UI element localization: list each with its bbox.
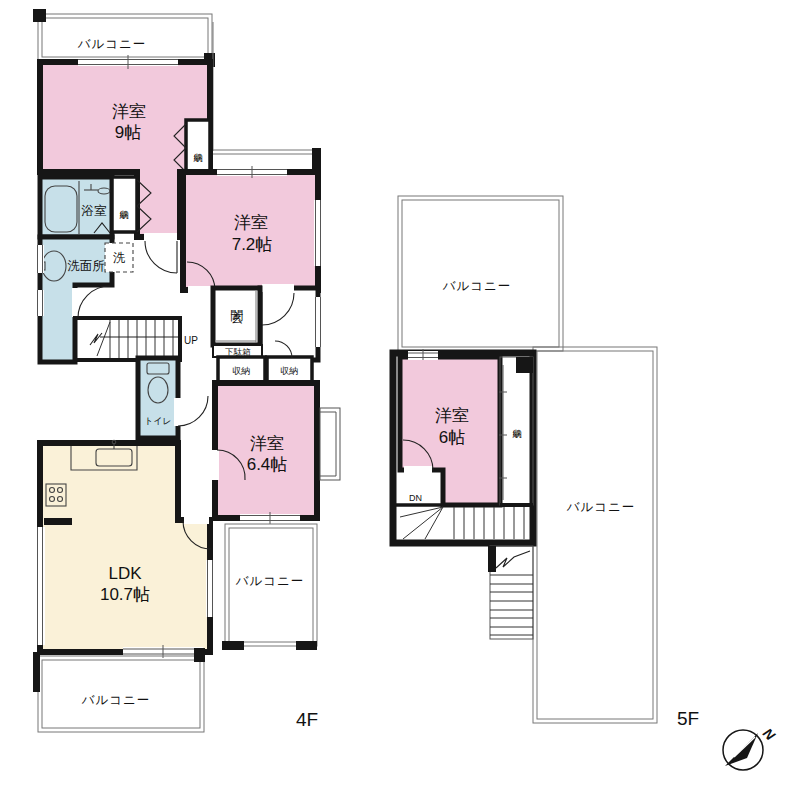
toilet-room: トイレ xyxy=(138,358,208,438)
balcony-bottom-4f: バルコニー xyxy=(33,648,205,732)
washer-space: 洗 xyxy=(105,243,133,272)
genkan: 玄関 xyxy=(213,288,260,345)
bathroom-label: 浴室 xyxy=(81,204,108,218)
room-64jo-size: 6.4帖 xyxy=(247,455,288,474)
entry-hall xyxy=(260,284,322,360)
floor-5f: バルコニー バルコニー 洋室 6帖 xyxy=(393,196,699,729)
closet-label: 収納 xyxy=(232,366,250,376)
stairs-exterior-5f xyxy=(488,546,533,639)
ldk: LDK 10.7帖 xyxy=(36,440,214,658)
room-64jo: 洋室 6.4帖 xyxy=(211,383,340,524)
floor-5f-label: 5F xyxy=(677,708,699,729)
balcony-top-5f: バルコニー xyxy=(398,196,563,351)
floor-4f-label: 4F xyxy=(296,709,318,730)
floor-4f: バルコニー 洋室 9帖 収納 xyxy=(33,9,340,732)
compass-north-label: N xyxy=(760,725,779,744)
stairs-down-label: DN xyxy=(409,493,422,503)
bathroom: 浴室 xyxy=(40,177,112,237)
room-6jo-size: 6帖 xyxy=(439,428,465,447)
stair-direction-arrow xyxy=(496,551,530,568)
bay-window xyxy=(320,408,340,480)
stairs-up-label: UP xyxy=(184,335,198,346)
ldk-size: 10.7帖 xyxy=(100,585,150,604)
washer-label: 洗 xyxy=(113,251,126,265)
room-72jo: 洋室 7.2帖 xyxy=(183,166,322,294)
balcony-mid-4f-label: バルコニー xyxy=(235,574,305,588)
closet-label: 収納 xyxy=(280,366,298,376)
shoe-cabinet: 下駄箱 xyxy=(213,345,262,357)
room-6jo-name: 洋室 xyxy=(435,406,469,425)
stairs-4f: UP xyxy=(75,318,198,360)
balcony-top-4f-label: バルコニー xyxy=(77,37,147,51)
floorplan-drawing: バルコニー 洋室 9帖 収納 xyxy=(0,0,800,800)
room-72jo-size: 7.2帖 xyxy=(232,235,273,254)
floorplan-page: バルコニー 洋室 9帖 収納 xyxy=(0,0,800,800)
wall-stub xyxy=(33,9,46,22)
room-64jo-name: 洋室 xyxy=(250,434,284,453)
balcony-right-5f: バルコニー xyxy=(533,347,657,723)
balcony-top-5f-label: バルコニー xyxy=(442,279,512,293)
compass-icon: N xyxy=(723,725,779,770)
washroom-label: 洗面所 xyxy=(67,259,105,273)
balcony-right-5f-label: バルコニー xyxy=(566,500,636,514)
balcony-bottom-4f-label: バルコニー xyxy=(81,693,151,707)
room-72jo-name: 洋室 xyxy=(234,213,268,232)
toilet-label: トイレ xyxy=(144,416,172,426)
balcony-mid-4f: バルコニー xyxy=(222,524,317,650)
room-9jo-name: 洋室 xyxy=(112,102,146,121)
ldk-name: LDK xyxy=(108,564,142,583)
room-9jo-size: 9帖 xyxy=(115,123,141,142)
